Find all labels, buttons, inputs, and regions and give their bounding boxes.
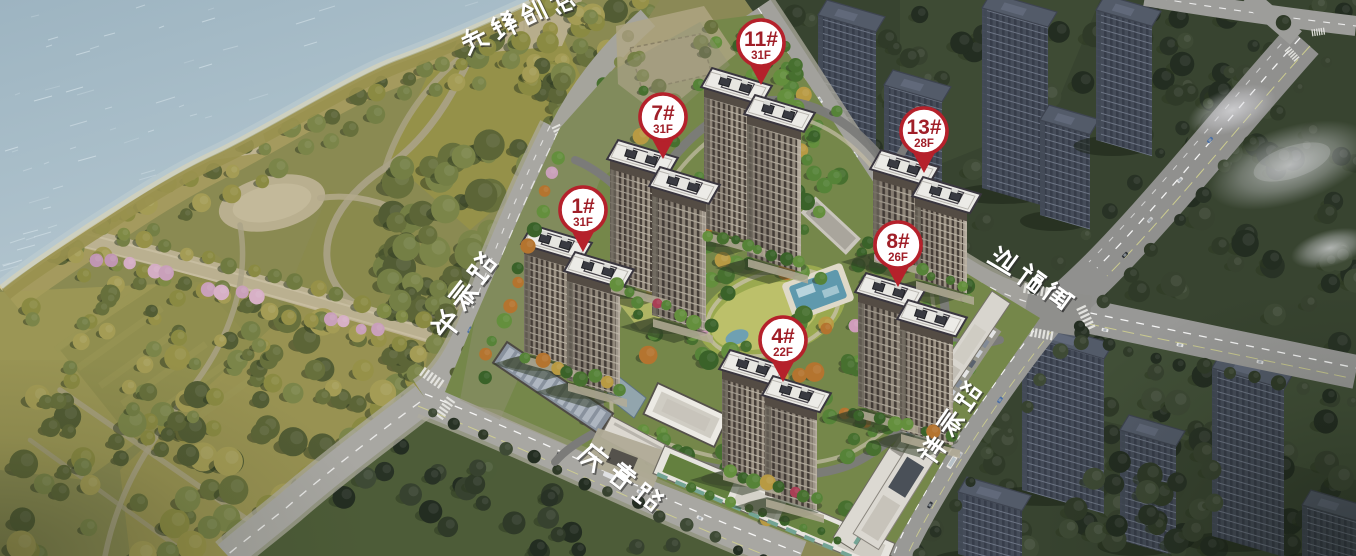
svg-text:11#: 11# [744, 28, 778, 51]
svg-text:8#: 8# [886, 230, 910, 253]
svg-text:22F: 22F [773, 347, 793, 359]
svg-text:13#: 13# [906, 116, 941, 139]
svg-text:31F: 31F [573, 217, 593, 229]
svg-text:26F: 26F [888, 252, 908, 264]
svg-text:1#: 1# [571, 195, 595, 218]
svg-text:31F: 31F [751, 50, 771, 62]
svg-text:7#: 7# [651, 102, 675, 125]
svg-text:4#: 4# [771, 325, 795, 348]
svg-text:28F: 28F [914, 138, 934, 150]
svg-text:31F: 31F [653, 124, 673, 136]
